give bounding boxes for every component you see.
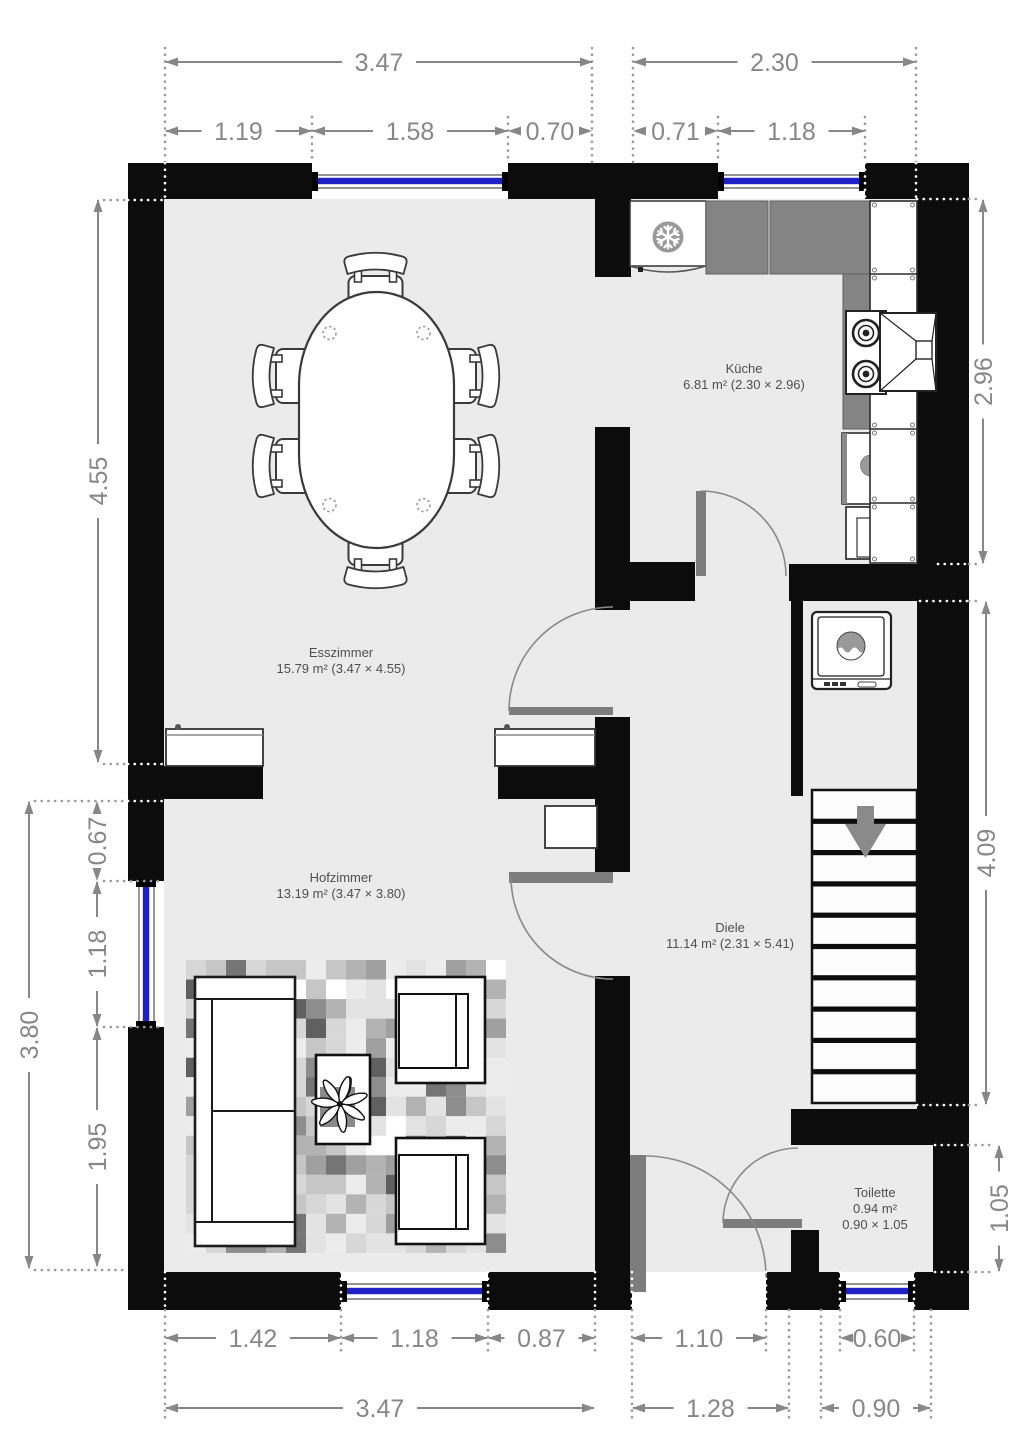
svg-text:1.95: 1.95 — [84, 1123, 112, 1172]
svg-text:Diele: Diele — [715, 920, 745, 935]
svg-text:1.28: 1.28 — [686, 1395, 735, 1423]
svg-text:0.90 × 1.05: 0.90 × 1.05 — [842, 1217, 907, 1232]
svg-text:0.87: 0.87 — [517, 1325, 566, 1353]
svg-text:1.10: 1.10 — [675, 1325, 724, 1353]
svg-text:11.14 m² (2.31 × 5.41): 11.14 m² (2.31 × 5.41) — [666, 936, 794, 951]
svg-text:3.80: 3.80 — [16, 1011, 44, 1060]
svg-text:1.42: 1.42 — [229, 1325, 278, 1353]
svg-text:Küche: Küche — [726, 361, 763, 376]
svg-text:0.90: 0.90 — [852, 1395, 901, 1423]
svg-text:4.55: 4.55 — [85, 457, 113, 506]
svg-text:Hofzimmer: Hofzimmer — [310, 870, 374, 885]
svg-text:3.47: 3.47 — [356, 1395, 405, 1423]
svg-text:0.94 m²: 0.94 m² — [853, 1201, 898, 1216]
svg-text:2.30: 2.30 — [750, 49, 799, 77]
svg-text:13.19 m² (3.47 × 3.80): 13.19 m² (3.47 × 3.80) — [277, 886, 406, 901]
svg-text:Esszimmer: Esszimmer — [309, 645, 374, 660]
svg-text:1.18: 1.18 — [767, 118, 816, 146]
svg-text:Toilette: Toilette — [854, 1185, 895, 1200]
svg-text:1.05: 1.05 — [986, 1184, 1014, 1233]
svg-text:1.58: 1.58 — [386, 118, 435, 146]
svg-text:2.96: 2.96 — [970, 357, 998, 406]
svg-text:1.19: 1.19 — [214, 118, 263, 146]
svg-text:6.81 m² (2.30 × 2.96): 6.81 m² (2.30 × 2.96) — [683, 377, 805, 392]
svg-text:1.18: 1.18 — [84, 930, 112, 979]
svg-text:4.09: 4.09 — [973, 829, 1001, 878]
svg-text:3.47: 3.47 — [355, 49, 404, 77]
svg-text:0.67: 0.67 — [84, 817, 112, 866]
svg-text:0.71: 0.71 — [651, 118, 700, 146]
svg-text:15.79 m² (3.47 × 4.55): 15.79 m² (3.47 × 4.55) — [277, 661, 406, 676]
svg-text:0.60: 0.60 — [853, 1325, 902, 1353]
svg-text:0.70: 0.70 — [526, 118, 575, 146]
svg-text:1.18: 1.18 — [390, 1325, 439, 1353]
